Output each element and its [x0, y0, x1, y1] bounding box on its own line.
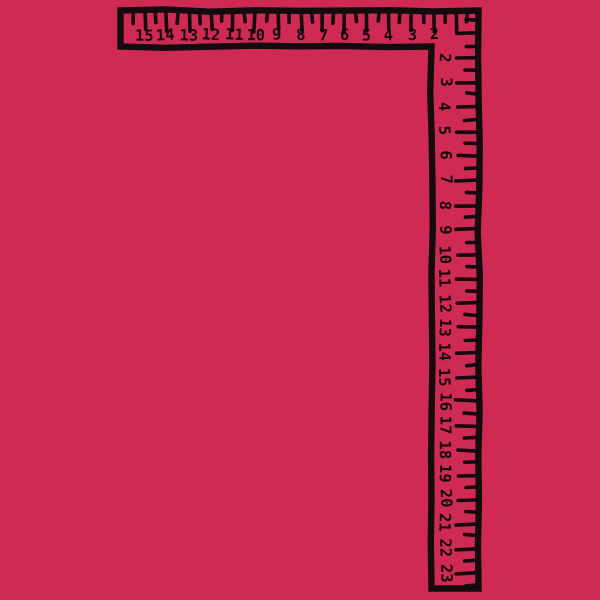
h-ruler-number: 2 — [429, 25, 439, 43]
h-ruler-number: 15 — [135, 27, 154, 45]
v-ruler-number: 10 — [435, 245, 454, 265]
h-tick — [333, 13, 334, 24]
h-ruler-number: 14 — [155, 26, 175, 45]
h-ruler-number: 13 — [179, 26, 198, 44]
v-ruler-number: 8 — [436, 200, 455, 211]
v-ruler-number: 17 — [437, 416, 455, 435]
v-ruler-number: 20 — [436, 488, 455, 508]
v-tick — [457, 377, 477, 378]
v-tick — [465, 314, 477, 315]
h-tick — [378, 13, 379, 22]
h-tick — [423, 13, 424, 23]
v-ruler-number: 19 — [436, 464, 455, 483]
v-tick — [466, 216, 477, 217]
h-ruler-number: 10 — [246, 26, 265, 44]
canvas: 15141312111098765432 2345678910111213141… — [0, 0, 600, 600]
v-tick — [456, 573, 477, 574]
v-tick — [465, 560, 477, 561]
h-ruler-number: 6 — [340, 26, 350, 44]
v-ruler-number: 3 — [437, 77, 455, 87]
v-ruler-number: 15 — [435, 368, 454, 387]
v-tick — [467, 93, 477, 94]
v-ruler-number: 9 — [436, 225, 454, 234]
h-tick — [155, 13, 156, 23]
v-ruler-number: 16 — [436, 392, 454, 411]
v-tick — [465, 534, 477, 535]
h-tick — [312, 13, 313, 23]
v-tick — [456, 549, 476, 550]
v-tick — [464, 413, 477, 414]
h-tick — [177, 13, 178, 24]
v-ruler-number: 13 — [435, 318, 454, 338]
v-ruler-number: 12 — [435, 294, 454, 314]
v-tick — [465, 120, 477, 121]
v-ruler-number: 2 — [436, 53, 455, 64]
v-tick — [458, 107, 477, 108]
v-ruler-number: 5 — [435, 125, 453, 135]
h-ruler-number: 3 — [408, 26, 417, 44]
v-ruler-number: 21 — [435, 513, 454, 532]
v-ruler-number: 14 — [435, 342, 453, 361]
v-ruler-number: 23 — [437, 564, 455, 583]
h-ruler-number: 11 — [225, 25, 245, 44]
v-tick — [457, 303, 476, 304]
v-tick — [458, 450, 477, 451]
v-ruler-number: 18 — [436, 440, 454, 459]
v-tick — [466, 512, 477, 513]
v-ruler-number: 4 — [435, 102, 453, 112]
v-tick — [456, 400, 477, 401]
v-tick — [456, 229, 477, 230]
h-ruler-number: 9 — [272, 25, 283, 44]
v-tick — [466, 168, 477, 169]
v-tick — [456, 426, 476, 427]
h-tick — [267, 13, 268, 22]
h-tick — [399, 13, 400, 23]
v-tick — [457, 353, 477, 354]
h-ruler-number: 7 — [319, 26, 329, 44]
v-tick — [456, 524, 476, 525]
h-ruler-number: 12 — [201, 25, 221, 44]
h-tick — [356, 13, 357, 22]
h-ruler-number: 8 — [296, 26, 306, 44]
h-ruler-number: 4 — [383, 26, 393, 44]
h-tick — [244, 13, 245, 22]
v-tick — [458, 155, 476, 156]
v-tick — [467, 390, 477, 391]
v-ruler-number: 11 — [435, 268, 454, 287]
v-tick — [464, 437, 476, 438]
framing-square-illustration: 15141312111098765432 2345678910111213141… — [0, 0, 600, 600]
v-tick — [466, 487, 477, 488]
background — [0, 0, 600, 600]
v-tick — [466, 192, 476, 193]
v-tick — [466, 585, 477, 586]
v-tick — [466, 19, 476, 20]
v-tick — [458, 500, 476, 501]
h-ruler-number: 5 — [362, 26, 372, 44]
v-ruler-number: 22 — [436, 538, 454, 557]
h-tick — [200, 13, 201, 24]
v-tick — [456, 180, 477, 181]
v-ruler-number: 7 — [437, 174, 455, 184]
v-tick — [467, 365, 477, 366]
v-ruler-number: 6 — [436, 150, 454, 160]
v-tick — [457, 33, 477, 34]
